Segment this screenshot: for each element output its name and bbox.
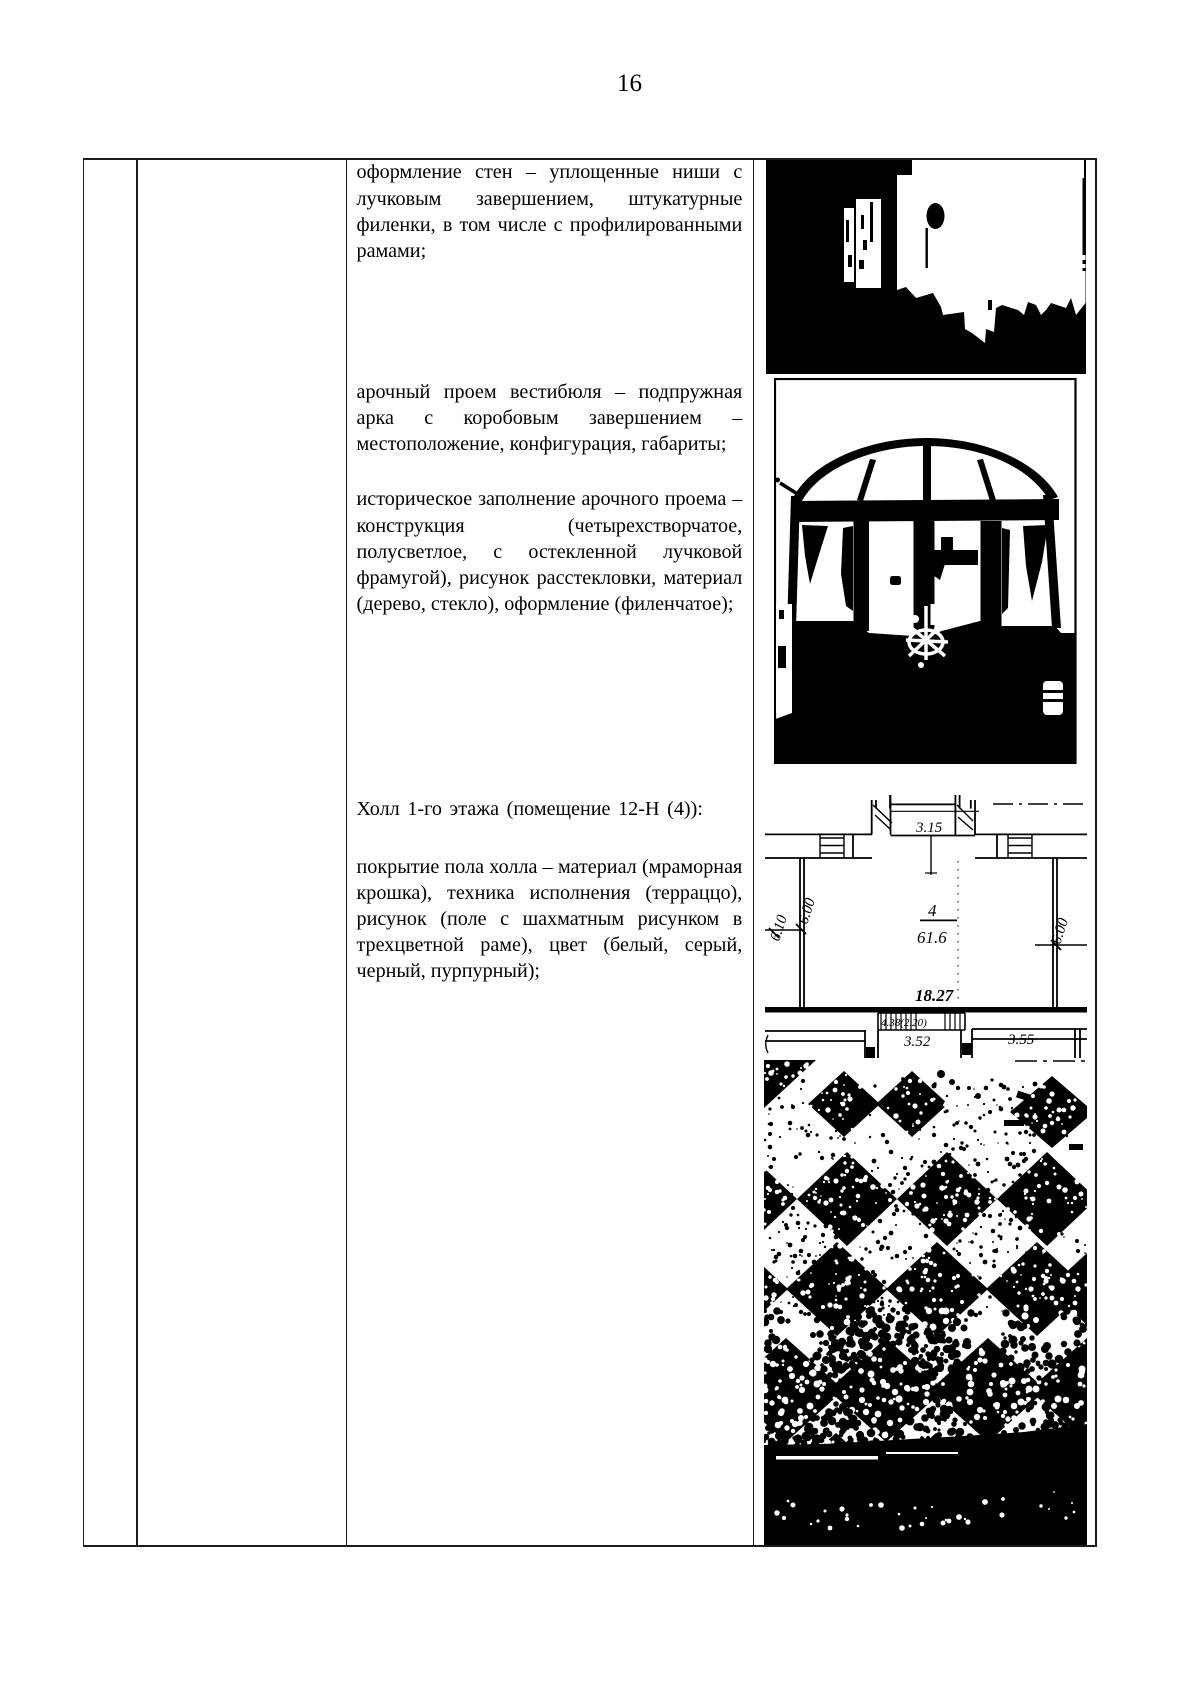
- svg-text:4: 4: [928, 901, 937, 920]
- svg-text:3.55: 3.55: [1007, 1032, 1035, 1048]
- svg-text:61.6: 61.6: [917, 928, 947, 947]
- svg-text:4.38(2.20): 4.38(2.20): [881, 1017, 927, 1029]
- svg-text:3.15: 3.15: [915, 820, 943, 836]
- svg-text:3.52: 3.52: [903, 1034, 931, 1050]
- svg-text:18.27: 18.27: [915, 986, 955, 1005]
